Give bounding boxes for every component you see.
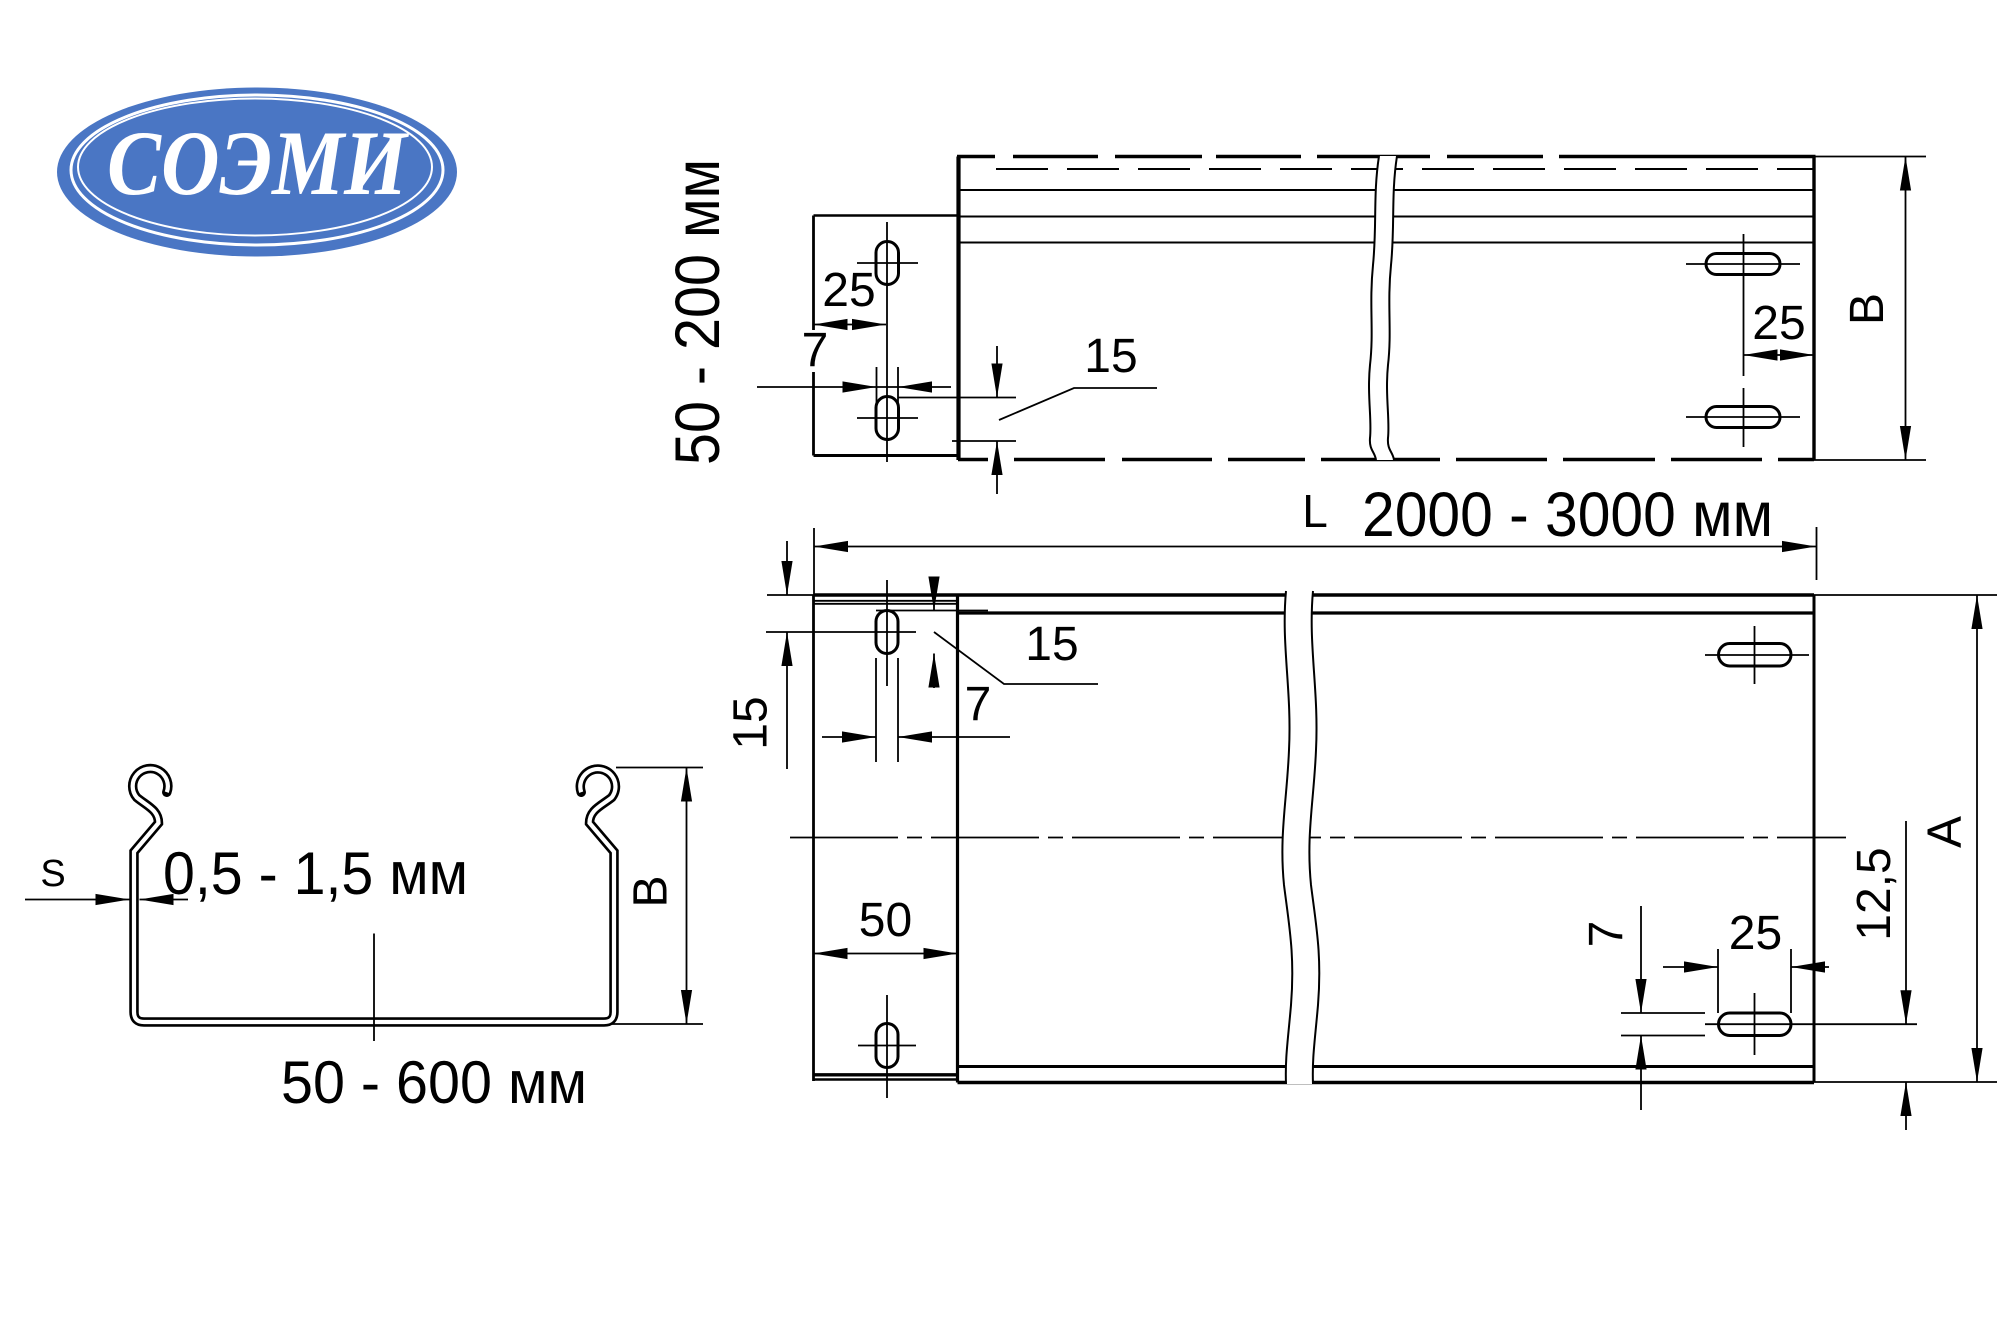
svg-text:2000 - 3000 мм: 2000 - 3000 мм <box>1362 480 1773 550</box>
svg-text:СОЭМИ: СОЭМИ <box>107 112 409 214</box>
svg-text:50: 50 <box>859 894 912 947</box>
svg-text:0,5 - 1,5 мм: 0,5 - 1,5 мм <box>163 840 468 907</box>
svg-text:7: 7 <box>1580 921 1633 948</box>
svg-text:15: 15 <box>724 696 777 749</box>
svg-text:25: 25 <box>1752 297 1805 350</box>
svg-text:B: B <box>1841 293 1894 325</box>
svg-text:B: B <box>624 875 677 907</box>
svg-text:12,5: 12,5 <box>1848 847 1901 940</box>
svg-text:50 - 200 мм: 50 - 200 мм <box>663 159 733 465</box>
svg-text:25: 25 <box>822 264 875 317</box>
svg-text:L: L <box>1302 485 1328 537</box>
svg-text:15: 15 <box>1084 330 1137 383</box>
svg-text:7: 7 <box>965 678 992 731</box>
svg-text:7: 7 <box>802 324 829 377</box>
svg-text:15: 15 <box>1025 618 1078 671</box>
svg-text:25: 25 <box>1729 907 1782 960</box>
svg-text:50 - 600 мм: 50 - 600 мм <box>281 1049 587 1116</box>
svg-text:A: A <box>1918 816 1971 848</box>
svg-text:S: S <box>40 853 65 895</box>
